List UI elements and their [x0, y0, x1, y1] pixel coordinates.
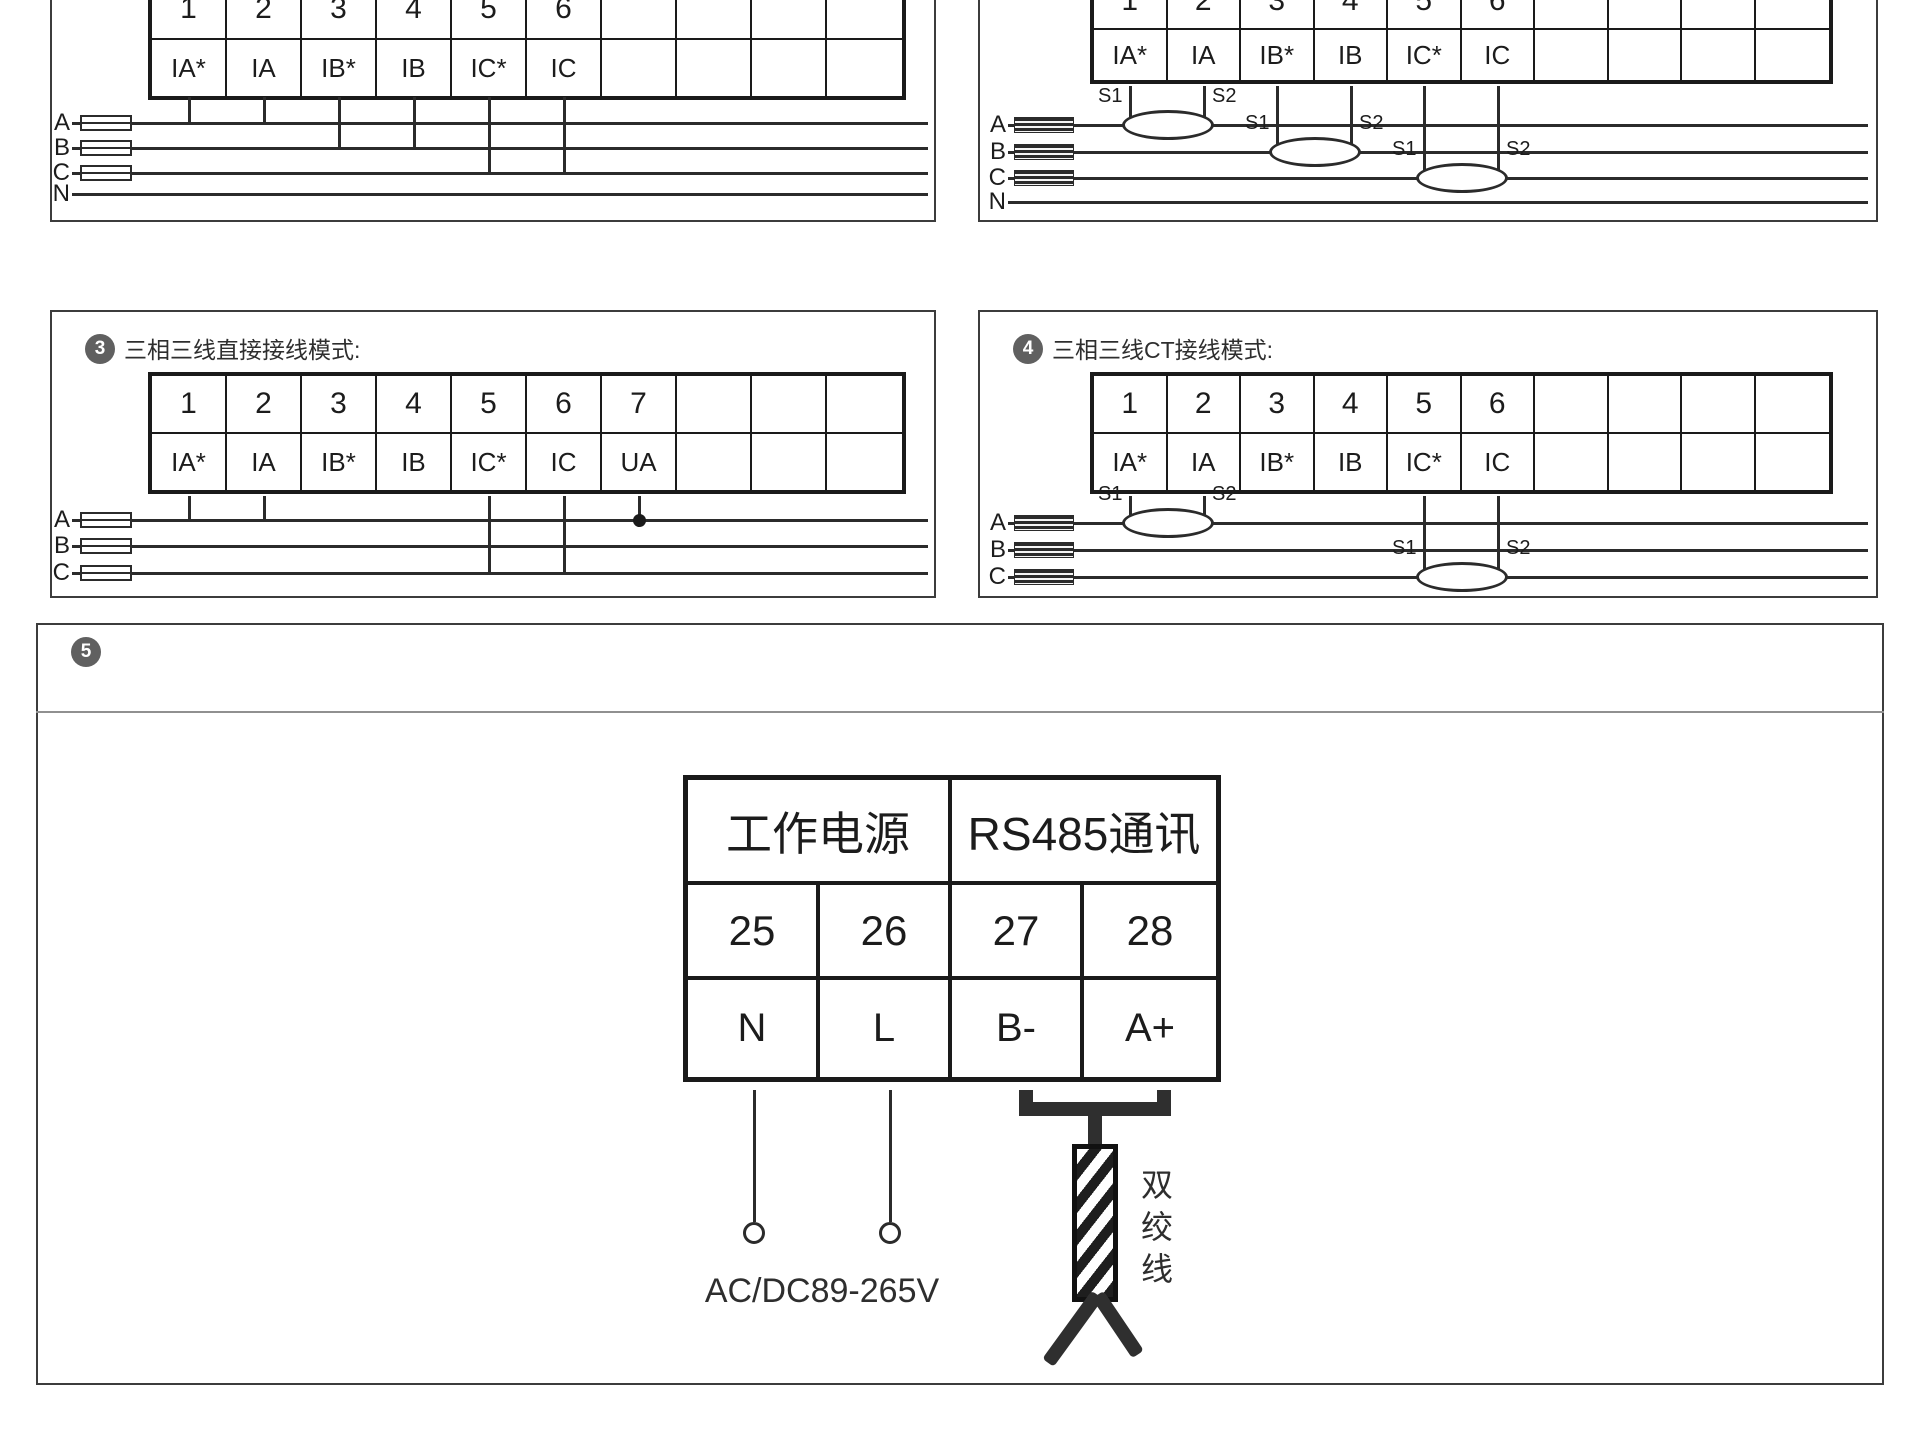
p2-fuse-a	[1014, 117, 1074, 133]
p4-phase-c-label: C	[980, 564, 1006, 590]
terminal-cell-empty	[602, 0, 677, 40]
terminal-cell-empty	[1535, 0, 1609, 30]
terminal-label-cell: IC*	[452, 434, 527, 490]
p2-phase-a-label: A	[980, 112, 1006, 138]
p5-divider-line	[36, 711, 1884, 713]
terminal-label-cell: IA	[1168, 30, 1242, 80]
terminal-number-cell: 4	[1315, 376, 1389, 434]
p1-drop-terminal-1	[188, 97, 191, 123]
twisted-pair-cable	[1072, 1144, 1118, 1302]
p2-ct-a-s1-label: S1	[1098, 86, 1122, 106]
p5-wire-l	[889, 1090, 892, 1222]
p1-drop-terminal-2	[263, 97, 266, 123]
terminal-label-cell: IB*	[1241, 30, 1315, 80]
terminal-cell-empty	[1756, 376, 1830, 434]
terminal-cell-empty	[827, 434, 902, 490]
p2-fuse-b	[1014, 144, 1074, 160]
p5-badge: 5	[71, 637, 101, 667]
terminal-cell-empty	[752, 434, 827, 490]
p2-fuse-c	[1014, 170, 1074, 186]
terminal-cell-empty	[1682, 434, 1756, 490]
p4-drop-terminal-6	[1497, 496, 1500, 577]
terminal-number-cell: 2	[227, 376, 302, 434]
terminal-number-cell: 28	[1084, 885, 1216, 980]
terminal-number-cell: 5	[1388, 0, 1462, 30]
terminal-number-cell: 1	[1094, 0, 1168, 30]
terminal-label-cell: IB*	[302, 40, 377, 96]
terminal-cell-empty	[827, 376, 902, 434]
p3-phase-c-label: C	[44, 560, 70, 586]
p2-phase-b-line	[1008, 151, 1868, 154]
terminal-number-cell: 5	[452, 0, 527, 40]
terminal-cell-empty	[677, 40, 752, 96]
p2-ct-c	[1416, 163, 1508, 193]
p3-badge: 3	[85, 334, 115, 364]
terminal-label-cell: IC	[1462, 434, 1536, 490]
p2-phase-n-line	[1008, 201, 1868, 204]
terminal-label-cell: IB*	[302, 434, 377, 490]
terminal-cell-empty	[1682, 0, 1756, 30]
terminal-cell-empty	[752, 376, 827, 434]
rs485-header-cell: RS485通讯	[952, 780, 1216, 885]
p3-fuse-b	[80, 538, 132, 554]
p2-ct-b	[1269, 137, 1361, 167]
terminal-label-cell: IC*	[452, 40, 527, 96]
p4-title: 三相三线CT接线模式:	[1052, 336, 1273, 364]
p2-ct-c-s2-label: S2	[1506, 139, 1530, 159]
p3-phase-a-line	[72, 519, 928, 522]
terminal-label-cell: IB	[1315, 30, 1389, 80]
terminal-cell-empty	[602, 40, 677, 96]
terminal-cell-empty	[1609, 376, 1683, 434]
terminal-number-cell: 4	[377, 376, 452, 434]
terminal-number-cell: 5	[452, 376, 527, 434]
terminal-cell-empty	[1535, 30, 1609, 80]
terminal-number-cell: 6	[527, 0, 602, 40]
terminal-number-cell: 4	[377, 0, 452, 40]
terminal-cell-empty	[1756, 30, 1830, 80]
p4-ct-a-s1-label: S1	[1098, 484, 1122, 504]
terminal-cell-empty	[827, 40, 902, 96]
p1-phase-n-line	[72, 193, 928, 196]
twisted-pair-label: 双绞线	[1132, 1168, 1178, 1294]
p3-phase-c-line	[72, 572, 928, 575]
p4-drop-terminal-5	[1423, 496, 1426, 577]
p4-ct-a	[1122, 508, 1214, 538]
terminal-number-cell: 4	[1315, 0, 1389, 30]
terminal-cell-empty	[1756, 0, 1830, 30]
terminal-cell-empty	[1609, 30, 1683, 80]
p5-terminal-table: 工作电源 RS485通讯 25 26 27 28 N L B- A+	[683, 775, 1221, 1082]
p3-phase-a-label: A	[44, 507, 70, 533]
p1-drop-terminal-5	[488, 97, 491, 173]
p1-fuse-c	[80, 165, 132, 181]
terminal-number-cell: 2	[227, 0, 302, 40]
p4-fuse-c	[1014, 569, 1074, 585]
terminal-cell-empty	[752, 40, 827, 96]
p1-terminal-table: 1 2 3 4 5 6 IA* IA IB* IB IC* IC	[148, 0, 906, 100]
terminal-cell-empty	[1609, 0, 1683, 30]
terminal-label-cell: IA*	[1094, 30, 1168, 80]
terminal-label-cell: IC*	[1388, 434, 1462, 490]
terminal-label-cell: IC	[527, 434, 602, 490]
p3-terminal-table: 1 2 3 4 5 6 7 IA* IA IB* IB IC* IC UA	[148, 372, 906, 494]
terminal-label-cell: IA*	[152, 40, 227, 96]
terminal-cell-empty	[677, 376, 752, 434]
p2-ct-a-s2-label: S2	[1212, 86, 1236, 106]
p4-phase-b-label: B	[980, 537, 1006, 563]
p3-drop-terminal-2	[263, 496, 266, 520]
p1-drop-terminal-6	[563, 97, 566, 173]
terminal-label-cell: IA	[227, 40, 302, 96]
p4-badge: 4	[1013, 334, 1043, 364]
terminal-cell-empty	[1682, 376, 1756, 434]
terminal-number-cell: 1	[152, 376, 227, 434]
terminal-cell-empty	[827, 0, 902, 40]
terminal-number-cell: 6	[527, 376, 602, 434]
terminal-cell-empty	[1535, 434, 1609, 490]
p1-fuse-b	[80, 140, 132, 156]
p3-title: 三相三线直接接线模式:	[124, 336, 360, 364]
p3-fuse-a	[80, 512, 132, 528]
p3-drop-terminal-1	[188, 496, 191, 520]
p4-fuse-a	[1014, 515, 1074, 531]
terminal-label-cell: IB	[377, 434, 452, 490]
p5-terminal-circle-n	[743, 1222, 765, 1244]
terminal-number-cell: 26	[820, 885, 952, 980]
terminal-label-cell: IB*	[1241, 434, 1315, 490]
p3-junction-dot	[633, 514, 646, 527]
p2-drop-terminal-6	[1497, 86, 1500, 178]
terminal-label-cell: UA	[602, 434, 677, 490]
terminal-cell-empty	[1609, 434, 1683, 490]
terminal-cell-empty	[1756, 434, 1830, 490]
terminal-label-cell: B-	[952, 980, 1084, 1077]
terminal-number-cell: 2	[1168, 0, 1242, 30]
p1-phase-a-label: A	[44, 110, 70, 136]
power-header-cell: 工作电源	[688, 780, 952, 885]
p2-ct-a	[1122, 110, 1214, 140]
terminal-label-cell: IA	[1168, 434, 1242, 490]
terminal-number-cell: 1	[1094, 376, 1168, 434]
p3-fuse-c	[80, 565, 132, 581]
p4-phase-a-label: A	[980, 510, 1006, 536]
terminal-number-cell: 1	[152, 0, 227, 40]
terminal-label-cell: N	[688, 980, 820, 1077]
terminal-number-cell: 2	[1168, 376, 1242, 434]
p3-drop-terminal-6	[563, 496, 566, 573]
terminal-number-cell: 3	[1241, 0, 1315, 30]
terminal-number-cell: 27	[952, 885, 1084, 980]
wiring-diagram-page: 1 2 3 4 5 6 IA* IA IB* IB IC* IC A B C N…	[0, 0, 1920, 1449]
p5-power-rating-label: AC/DC89-265V	[652, 1272, 992, 1311]
terminal-label-cell: IA*	[152, 434, 227, 490]
terminal-label-cell: IC*	[1388, 30, 1462, 80]
terminal-number-cell: 3	[1241, 376, 1315, 434]
terminal-number-cell: 25	[688, 885, 820, 980]
terminal-label-cell: IA*	[1094, 434, 1168, 490]
p5-bracket-center-stem	[1088, 1102, 1102, 1148]
p4-terminal-table: 1 2 3 4 5 6 IA* IA IB* IB IC* IC	[1090, 372, 1833, 494]
p2-ct-c-s1-label: S1	[1392, 139, 1416, 159]
p1-phase-b-label: B	[44, 135, 70, 161]
p2-phase-n-label: N	[980, 189, 1006, 215]
terminal-number-cell: 3	[302, 0, 377, 40]
p3-drop-terminal-5	[488, 496, 491, 573]
terminal-label-cell: L	[820, 980, 952, 1077]
p3-phase-b-label: B	[44, 533, 70, 559]
p1-phase-a-line	[72, 122, 928, 125]
p4-ct-c	[1416, 562, 1508, 592]
terminal-cell-empty	[677, 434, 752, 490]
p1-fuse-a	[80, 115, 132, 131]
p4-phase-b-line	[1008, 549, 1868, 552]
p2-drop-terminal-5	[1423, 86, 1426, 178]
terminal-number-cell: 7	[602, 376, 677, 434]
terminal-number-cell: 6	[1462, 376, 1536, 434]
terminal-number-cell: 6	[1462, 0, 1536, 30]
p5-wire-n	[753, 1090, 756, 1222]
terminal-cell-empty	[1682, 30, 1756, 80]
terminal-label-cell: A+	[1084, 980, 1216, 1077]
p5-terminal-circle-l	[879, 1222, 901, 1244]
terminal-number-cell: 3	[302, 376, 377, 434]
terminal-label-cell: IB	[1315, 434, 1389, 490]
terminal-cell-empty	[1535, 376, 1609, 434]
terminal-label-cell: IC	[1462, 30, 1536, 80]
p4-ct-c-s1-label: S1	[1392, 538, 1416, 558]
p4-ct-a-s2-label: S2	[1212, 484, 1236, 504]
terminal-label-cell: IB	[377, 40, 452, 96]
p4-fuse-b	[1014, 542, 1074, 558]
p1-phase-b-line	[72, 147, 928, 150]
p4-ct-c-s2-label: S2	[1506, 538, 1530, 558]
terminal-cell-empty	[677, 0, 752, 40]
p2-ct-b-s2-label: S2	[1359, 113, 1383, 133]
terminal-number-cell: 5	[1388, 376, 1462, 434]
terminal-cell-empty	[752, 0, 827, 40]
p2-ct-b-s1-label: S1	[1245, 113, 1269, 133]
p1-phase-n-label: N	[44, 181, 70, 207]
p2-terminal-table: 1 2 3 4 5 6 IA* IA IB* IB IC* IC	[1090, 0, 1833, 84]
terminal-label-cell: IA	[227, 434, 302, 490]
p2-phase-b-label: B	[980, 139, 1006, 165]
p3-phase-b-line	[72, 545, 928, 548]
terminal-label-cell: IC	[527, 40, 602, 96]
p1-phase-c-line	[72, 172, 928, 175]
